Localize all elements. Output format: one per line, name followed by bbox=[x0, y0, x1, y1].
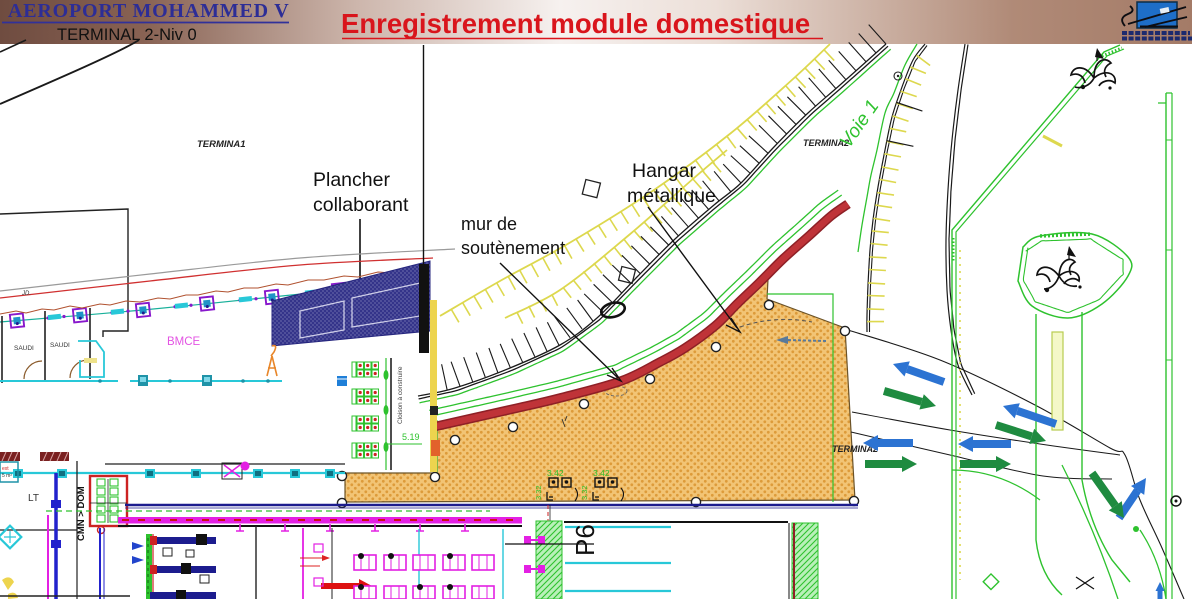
svg-text:mur de: mur de bbox=[461, 214, 517, 234]
svg-text:ext: ext bbox=[2, 466, 9, 472]
svg-text:Enregistrement module domestiq: Enregistrement module domestique bbox=[341, 8, 810, 39]
svg-text:JD.: JD. bbox=[21, 291, 31, 297]
svg-text:Cloison à construire: Cloison à construire bbox=[397, 366, 404, 424]
svg-text:3.42: 3.42 bbox=[593, 468, 610, 478]
svg-text:soutènement: soutènement bbox=[461, 238, 565, 258]
svg-text:SAUDI: SAUDI bbox=[50, 342, 70, 349]
svg-text:TERMINAL 2-Niv 0: TERMINAL 2-Niv 0 bbox=[57, 26, 197, 44]
svg-text:5.19: 5.19 bbox=[402, 432, 420, 442]
svg-text:LT: LT bbox=[28, 493, 39, 504]
svg-text:3.32: 3.32 bbox=[580, 485, 589, 500]
svg-text:BMCE: BMCE bbox=[167, 336, 201, 348]
svg-text:3.42: 3.42 bbox=[547, 468, 564, 478]
svg-text:CMN > DOM: CMN > DOM bbox=[76, 486, 87, 541]
svg-text:3.32: 3.32 bbox=[534, 485, 543, 500]
svg-text:Hangar: Hangar bbox=[632, 160, 696, 182]
svg-text:5 m²: 5 m² bbox=[2, 473, 12, 479]
svg-text:Plancher: Plancher bbox=[313, 169, 390, 191]
svg-text:P6: P6 bbox=[570, 524, 600, 556]
svg-text:métallique: métallique bbox=[627, 185, 716, 207]
svg-text:SAUDI: SAUDI bbox=[14, 345, 34, 352]
svg-text:TERMINA1: TERMINA1 bbox=[197, 139, 246, 150]
svg-text:collaborant: collaborant bbox=[313, 194, 409, 216]
svg-text:AEROPORT MOHAMMED V: AEROPORT MOHAMMED V bbox=[8, 0, 290, 22]
